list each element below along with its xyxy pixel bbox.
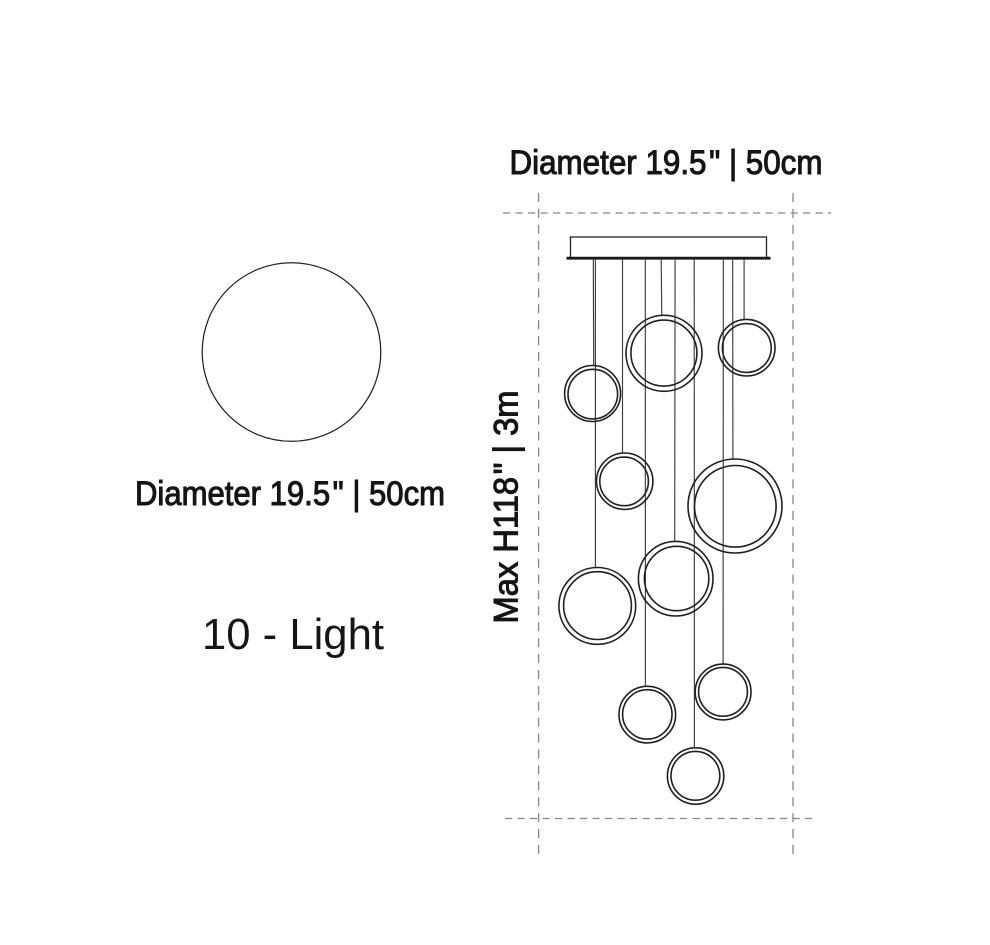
svg-text:10 - Light: 10 - Light bbox=[202, 610, 384, 659]
svg-text:Max H118 " | 3m: Max H118 " | 3m bbox=[488, 391, 526, 624]
svg-text:Diameter 19.5 " | 50cm: Diameter 19.5 " | 50cm bbox=[135, 475, 445, 513]
svg-text:Diameter 19.5 " | 50cm: Diameter 19.5 " | 50cm bbox=[510, 144, 823, 182]
